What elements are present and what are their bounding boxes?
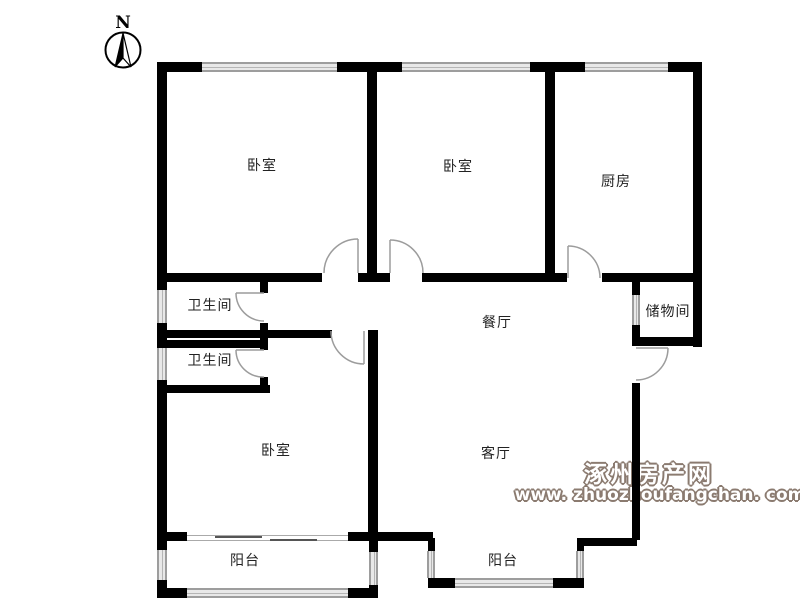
room-label-kitchen: 厨房 xyxy=(601,171,631,191)
room-label-dining: 餐厅 xyxy=(482,312,512,332)
room-label-balcony1: 阳台 xyxy=(230,550,260,570)
room-label-bedroom2: 卧室 xyxy=(443,156,473,176)
room-label-storage: 储物间 xyxy=(646,301,691,321)
room-label-bedroom3: 卧室 xyxy=(261,440,291,460)
door-arc xyxy=(236,350,264,377)
room-label-bedroom1: 卧室 xyxy=(247,155,277,175)
room-label-bathroom1: 卫生间 xyxy=(188,295,233,315)
room-label-living: 客厅 xyxy=(481,443,511,463)
room-label-bathroom2: 卫生间 xyxy=(188,350,233,370)
door-arc xyxy=(324,239,358,273)
door-arc xyxy=(568,246,600,278)
door-arcs-layer xyxy=(0,0,800,600)
floor-plan-canvas: 涿州房产网 www. zhuozhoufangchan. com xyxy=(0,0,800,600)
door-arc xyxy=(390,240,423,273)
room-label-balcony2: 阳台 xyxy=(488,550,518,570)
door-arc xyxy=(636,348,668,380)
door-arc xyxy=(236,293,264,321)
door-arc xyxy=(331,331,364,364)
